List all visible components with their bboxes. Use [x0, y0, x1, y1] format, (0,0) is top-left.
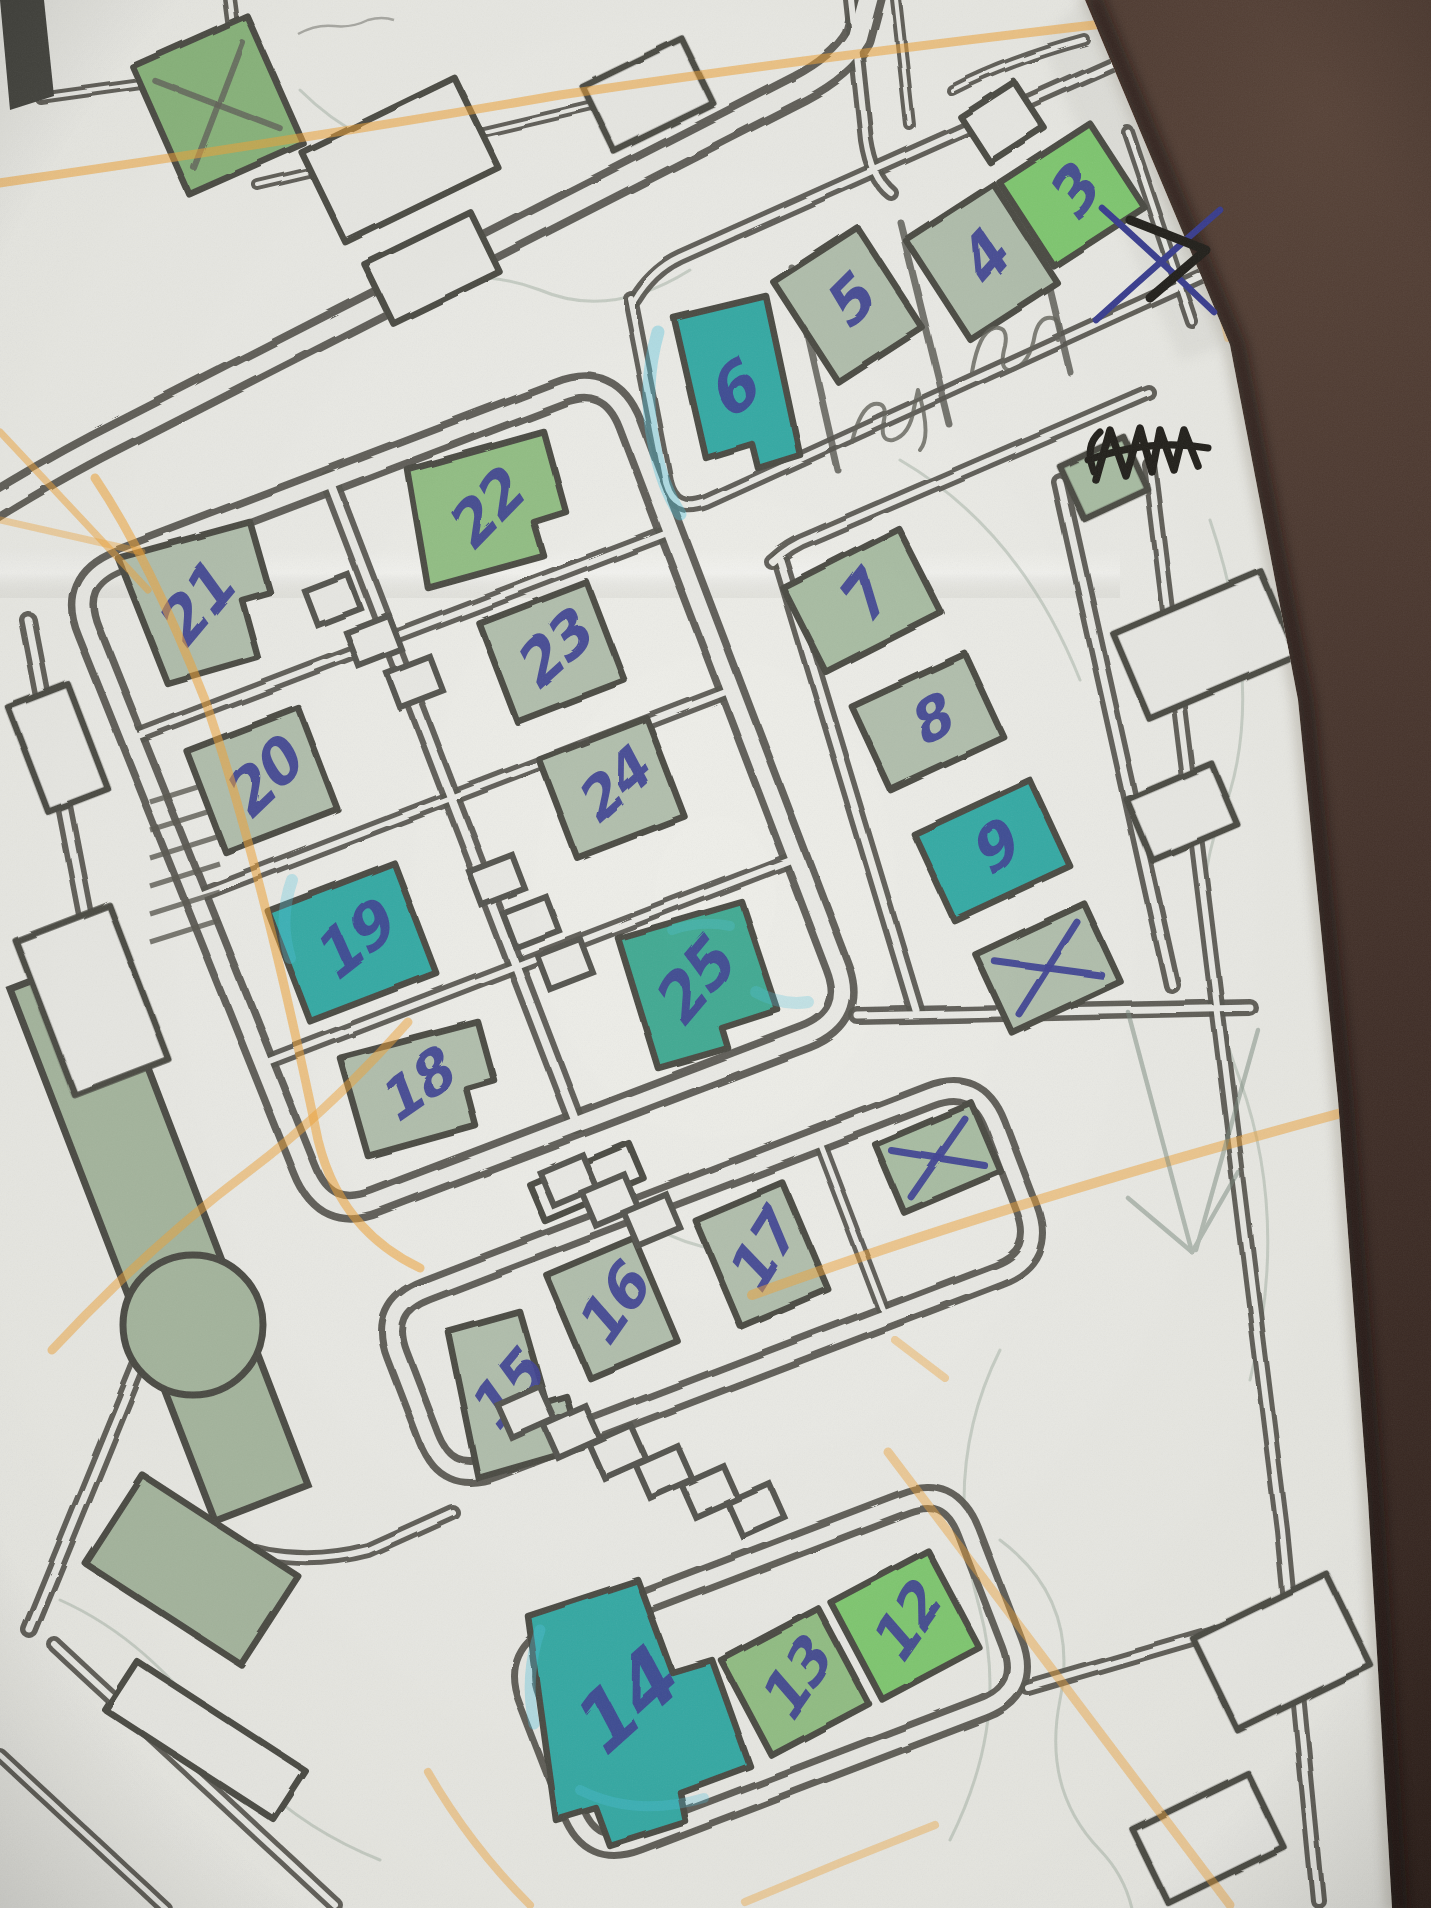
- photo-vignette: [0, 0, 1431, 1908]
- photo-of-map: 34567892122232024192518171615141312: [0, 0, 1431, 1908]
